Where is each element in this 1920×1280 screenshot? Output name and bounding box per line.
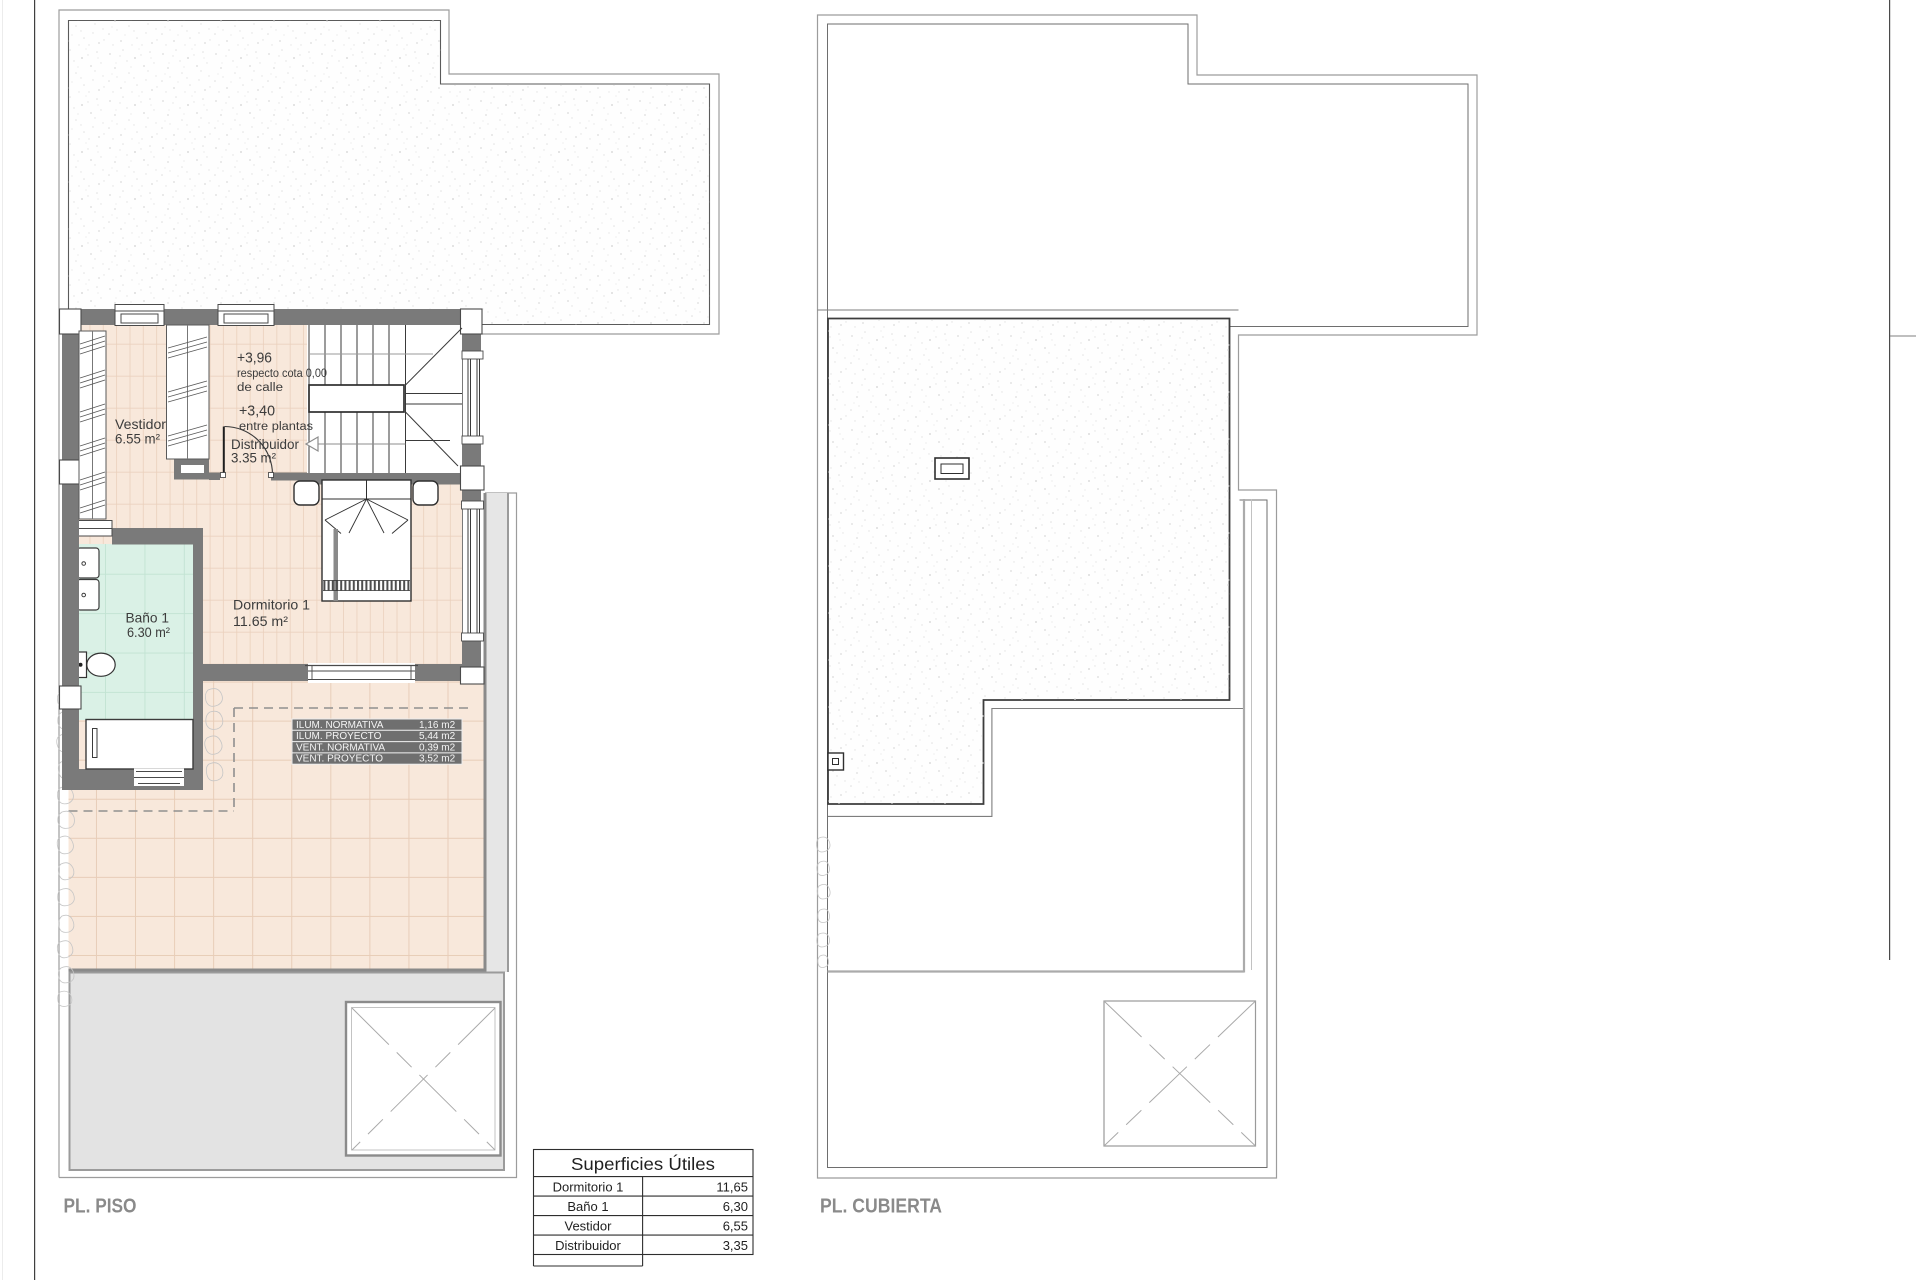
- svg-text:11,65: 11,65: [716, 1179, 748, 1194]
- svg-text:+3,96: +3,96: [237, 350, 272, 367]
- svg-text:ILUM. NORMATIVA: ILUM. NORMATIVA: [296, 720, 384, 731]
- svg-text:ILUM. PROYECTO: ILUM. PROYECTO: [296, 731, 382, 742]
- svg-text:6,30: 6,30: [723, 1199, 748, 1214]
- svg-text:VENT. PROYECTO: VENT. PROYECTO: [296, 754, 383, 765]
- svg-text:6.55 m²: 6.55 m²: [115, 431, 160, 447]
- svg-text:6,55: 6,55: [723, 1218, 748, 1233]
- svg-text:de calle: de calle: [237, 382, 283, 394]
- svg-text:6.30 m²: 6.30 m²: [127, 624, 170, 640]
- svg-text:3.35 m²: 3.35 m²: [231, 450, 276, 466]
- svg-text:Distribuidor: Distribuidor: [555, 1238, 621, 1253]
- svg-text:+3,40: +3,40: [239, 403, 275, 420]
- svg-text:1,16 m2: 1,16 m2: [419, 720, 456, 731]
- svg-text:5,44 m2: 5,44 m2: [419, 731, 456, 742]
- svg-text:3,52 m2: 3,52 m2: [419, 754, 456, 765]
- svg-text:0,39 m2: 0,39 m2: [419, 742, 456, 753]
- svg-text:Vestidor: Vestidor: [565, 1218, 613, 1233]
- svg-text:VENT. NORMATIVA: VENT. NORMATIVA: [296, 742, 385, 753]
- svg-text:Dormitorio 1: Dormitorio 1: [553, 1179, 624, 1194]
- svg-text:Dormitorio 1: Dormitorio 1: [233, 597, 310, 613]
- svg-text:entre plantas: entre plantas: [239, 421, 313, 433]
- svg-text:PL. CUBIERTA: PL. CUBIERTA: [820, 1196, 942, 1218]
- svg-text:Baño 1: Baño 1: [567, 1199, 608, 1214]
- svg-text:PL. PISO: PL. PISO: [64, 1196, 137, 1218]
- svg-text:11.65 m²: 11.65 m²: [233, 613, 288, 629]
- svg-text:Superficies Útiles: Superficies Útiles: [571, 1153, 715, 1174]
- svg-text:3,35: 3,35: [723, 1238, 748, 1253]
- svg-text:respecto cota 0,00: respecto cota 0,00: [237, 368, 327, 380]
